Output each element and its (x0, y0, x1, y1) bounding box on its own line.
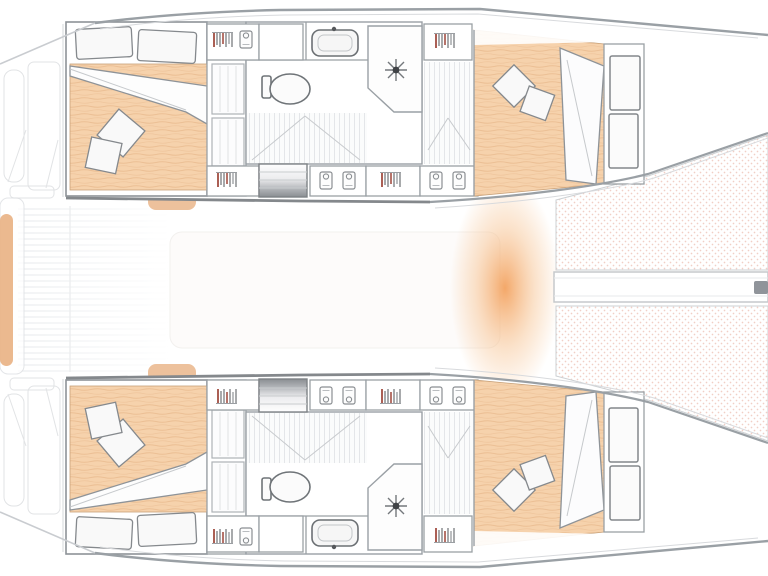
locker-icon (240, 31, 252, 48)
bed-pillow (137, 30, 197, 64)
shower-icon (385, 59, 407, 81)
aft-crossbeam (0, 214, 13, 366)
starboard-hull (0, 368, 768, 567)
forward-passage (424, 24, 474, 164)
locker-icon (453, 172, 465, 189)
aft-cabin (66, 22, 207, 196)
cockpit-deck (0, 198, 500, 374)
throw-cushion (85, 137, 122, 174)
duvet-fold (560, 48, 604, 184)
forward-cabin (474, 28, 644, 196)
foredeck-glow (450, 176, 560, 400)
locker-icon (430, 172, 442, 189)
bow-shelves (604, 44, 644, 184)
sink-icon (312, 27, 358, 56)
bed-pillow (75, 27, 132, 60)
locker-icon (320, 172, 332, 189)
catamaran-floorplan (0, 0, 768, 576)
port-hull (0, 9, 768, 208)
forward-crossbeam-bowsprit (554, 272, 768, 302)
floorplan-page (0, 0, 768, 576)
locker-icon (343, 172, 355, 189)
corridor-cabinets (207, 164, 478, 197)
wardrobe-cell (207, 24, 303, 60)
